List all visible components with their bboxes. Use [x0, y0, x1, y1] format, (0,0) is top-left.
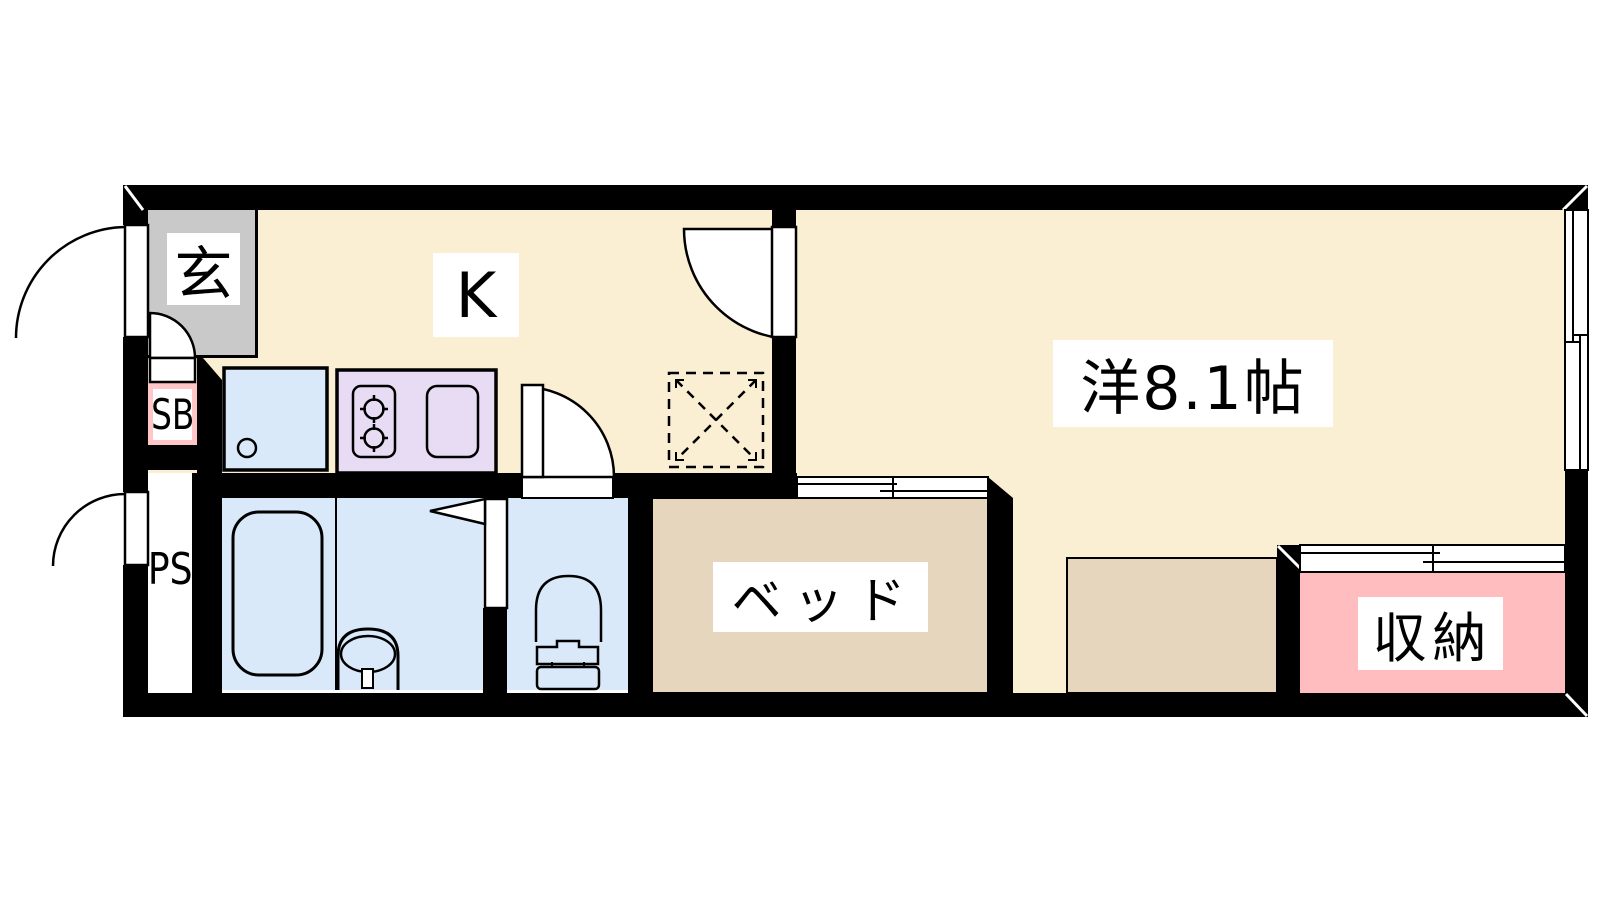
right-sliding-window: [1565, 210, 1588, 470]
bathroom-floor: [222, 498, 483, 690]
pipe-space-label-text: PS: [148, 544, 193, 595]
shoe-box-label-text: SB: [151, 390, 194, 439]
pipe-space-label: PS: [144, 540, 196, 598]
genkan-label: 玄: [167, 233, 240, 305]
pipe-space-door: [53, 492, 148, 566]
storage-label: 収納: [1358, 597, 1503, 670]
entrance-door: [16, 225, 148, 338]
kitchen-label: K: [433, 253, 519, 337]
shoe-box-label: SB: [153, 389, 192, 440]
western-room-label: 洋8.1帖: [1053, 340, 1333, 427]
toilet-floor: [507, 498, 628, 690]
bed-label: ベッド: [713, 562, 928, 632]
floor-plan: 玄 K 洋8.1帖 ベッド 収納 SB PS: [0, 0, 1600, 900]
